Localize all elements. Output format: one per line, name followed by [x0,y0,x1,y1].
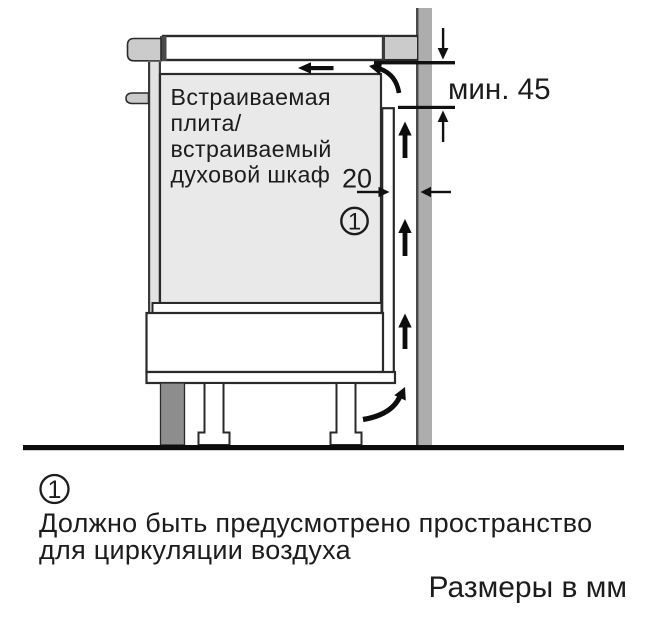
svg-text:встраиваемый: встраиваемый [171,136,332,162]
svg-text:20: 20 [342,164,372,194]
svg-text:Должно быть предусмотрено прос: Должно быть предусмотрено пространство [39,508,592,538]
svg-text:1: 1 [348,209,361,236]
svg-text:духовой шкаф: духовой шкаф [171,162,331,188]
svg-text:для циркуляции воздуха: для циркуляции воздуха [39,535,352,565]
svg-text:Встраиваемая: Встраиваемая [171,84,331,110]
svg-text:Размеры в мм: Размеры в мм [428,571,627,604]
svg-text:плита/: плита/ [171,110,242,136]
svg-text:мин. 45: мин. 45 [448,73,551,106]
svg-text:1: 1 [48,476,62,504]
